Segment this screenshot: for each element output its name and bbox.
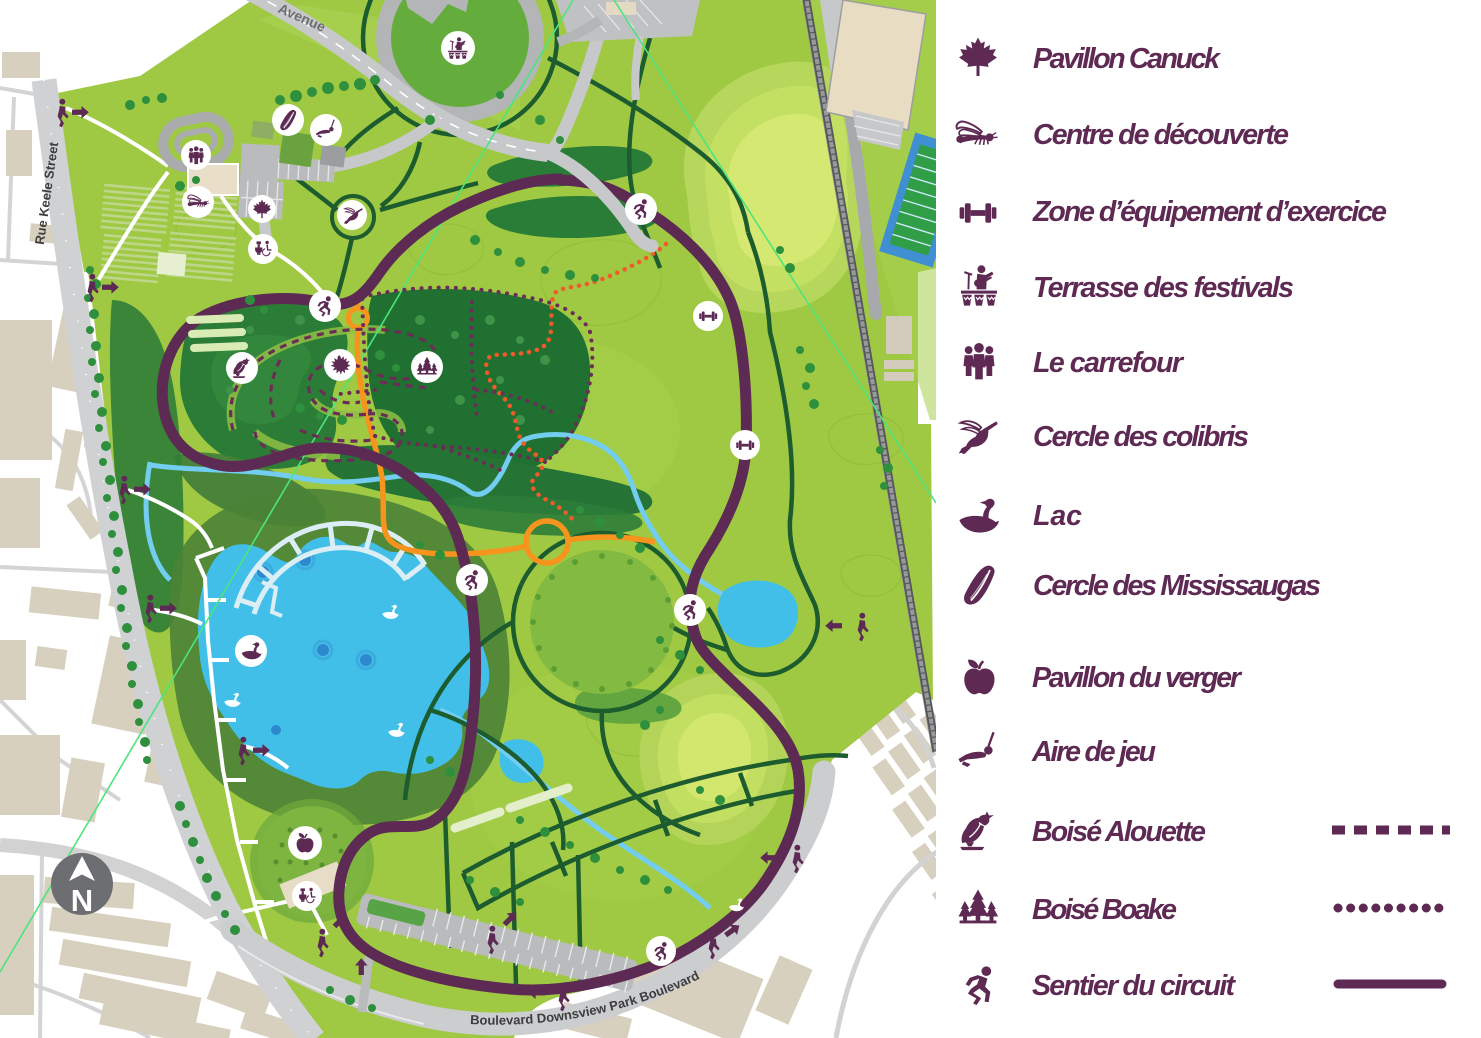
svg-text:Le carrefour: Le carrefour <box>1033 347 1185 379</box>
svg-text:Aire de jeu: Aire de jeu <box>1031 736 1156 768</box>
svg-text:Boisé Alouette: Boisé Alouette <box>1032 816 1206 848</box>
svg-text:Lac: Lac <box>1033 500 1082 532</box>
svg-text:Zone d’équipement d’exercice: Zone d’équipement d’exercice <box>1032 196 1387 228</box>
svg-text:Cercle des Mississaugas: Cercle des Mississaugas <box>1033 570 1321 602</box>
svg-text:Pavillon Canuck: Pavillon Canuck <box>1033 43 1222 75</box>
svg-text:Boisé Boake: Boisé Boake <box>1032 894 1177 926</box>
svg-text:Pavillon du verger: Pavillon du verger <box>1032 662 1243 694</box>
svg-text:Centre de découverte: Centre de découverte <box>1033 119 1289 151</box>
svg-text:Sentier du circuit: Sentier du circuit <box>1032 970 1237 1002</box>
svg-text:Terrasse des festivals: Terrasse des festivals <box>1033 272 1294 304</box>
svg-text:Cercle des colibris: Cercle des colibris <box>1033 421 1249 453</box>
svg-text:N: N <box>71 883 93 918</box>
